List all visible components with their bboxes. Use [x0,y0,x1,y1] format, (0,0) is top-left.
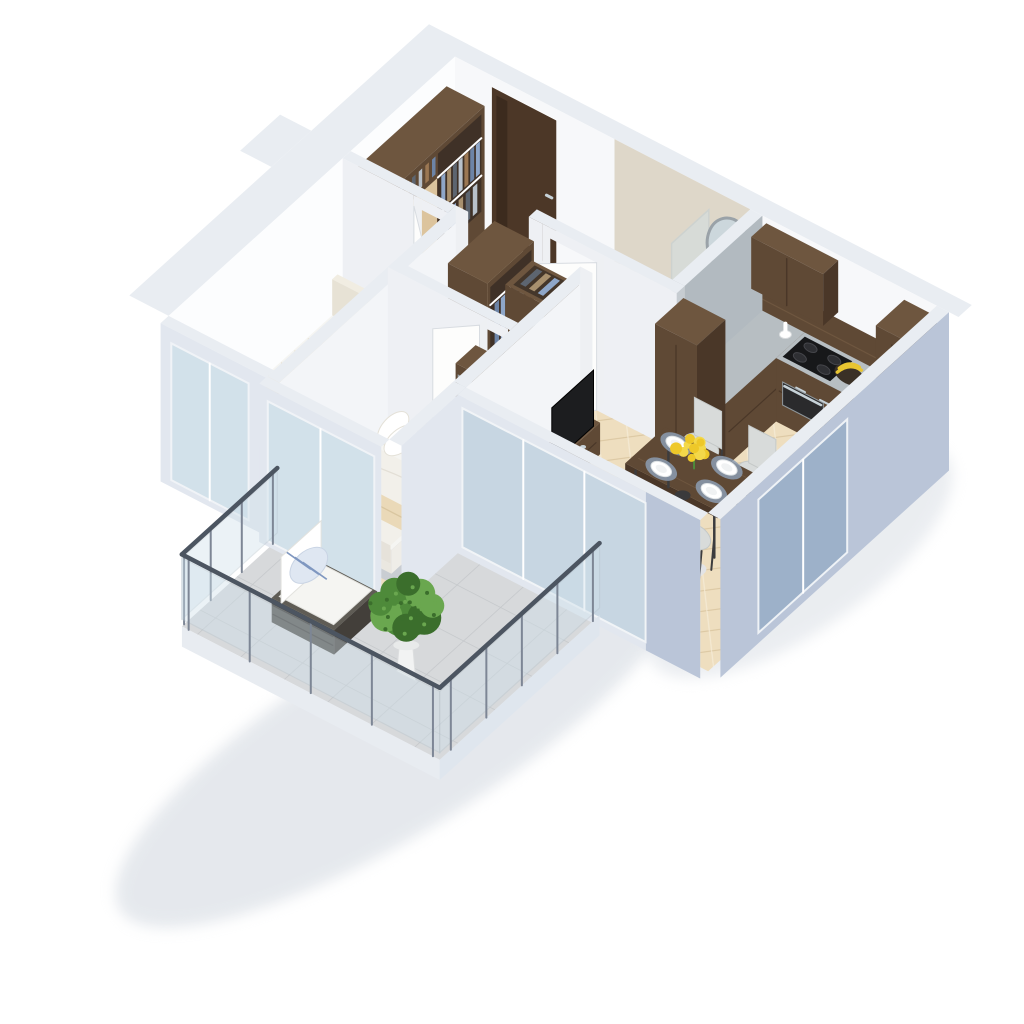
floor-plan-render [0,0,1024,1024]
isometric-apartment-svg [0,0,1024,1024]
